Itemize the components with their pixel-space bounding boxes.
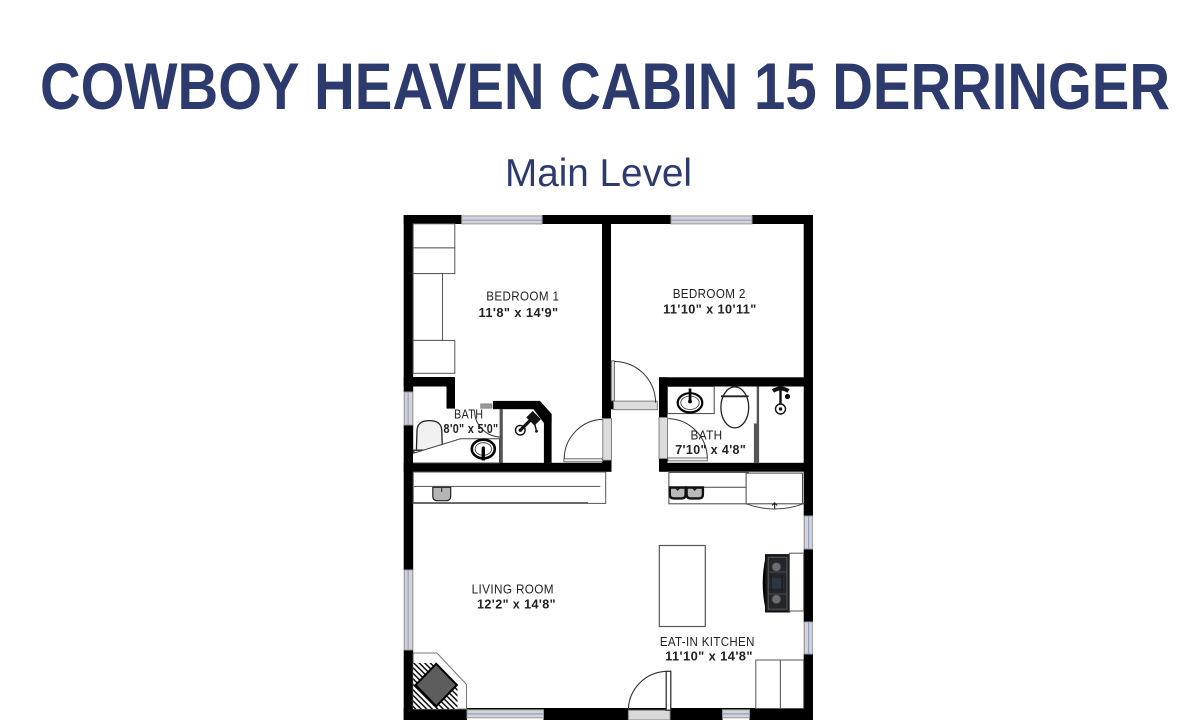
svg-text:11'10" x 10'11": 11'10" x 10'11" [663, 301, 757, 316]
svg-text:BATH: BATH [454, 407, 483, 422]
svg-text:LIVING ROOM: LIVING ROOM [472, 581, 554, 596]
svg-text:11'10" x 14'8": 11'10" x 14'8" [665, 649, 753, 664]
svg-text:12'2" x 14'8": 12'2" x 14'8" [477, 597, 556, 612]
svg-text:EAT-IN KITCHEN: EAT-IN KITCHEN [660, 634, 755, 649]
svg-text:11'8" x 14'9": 11'8" x 14'9" [479, 305, 559, 320]
svg-text:BATH: BATH [691, 428, 723, 443]
svg-text:8'0" x 5'0": 8'0" x 5'0" [444, 421, 499, 436]
svg-text:BEDROOM 1: BEDROOM 1 [486, 288, 559, 303]
svg-text:Main Level: Main Level [505, 152, 692, 195]
svg-text:COWBOY HEAVEN CABIN 15 DERRING: COWBOY HEAVEN CABIN 15 DERRINGER [40, 50, 1170, 123]
svg-text:BEDROOM 2: BEDROOM 2 [673, 286, 746, 301]
svg-text:7'10" x 4'8": 7'10" x 4'8" [675, 442, 746, 457]
